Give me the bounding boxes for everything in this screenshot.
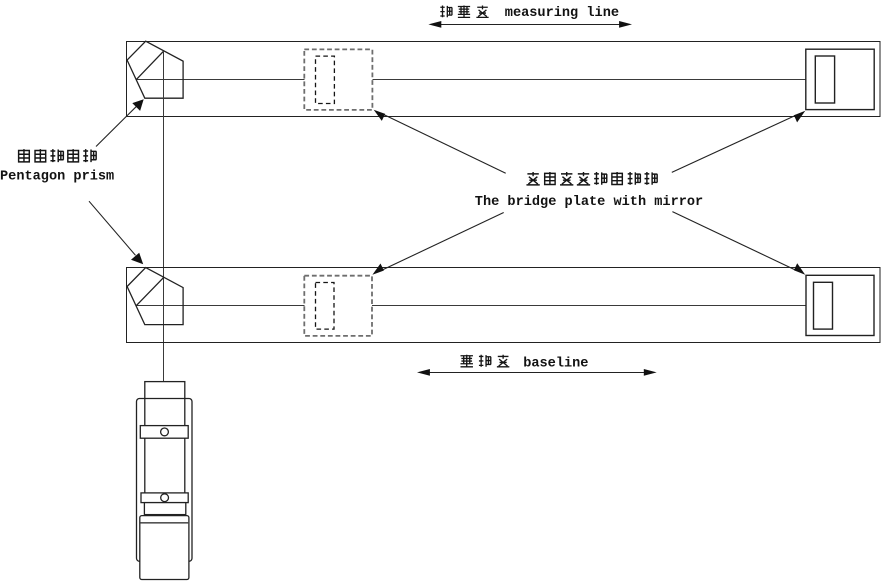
- svg-text:Pentagon prism: Pentagon prism: [0, 170, 114, 185]
- svg-text:baseline: baseline: [523, 357, 588, 372]
- svg-text:The bridge plate with mirror: The bridge plate with mirror: [475, 195, 703, 210]
- svg-text:measuring line: measuring line: [505, 6, 619, 21]
